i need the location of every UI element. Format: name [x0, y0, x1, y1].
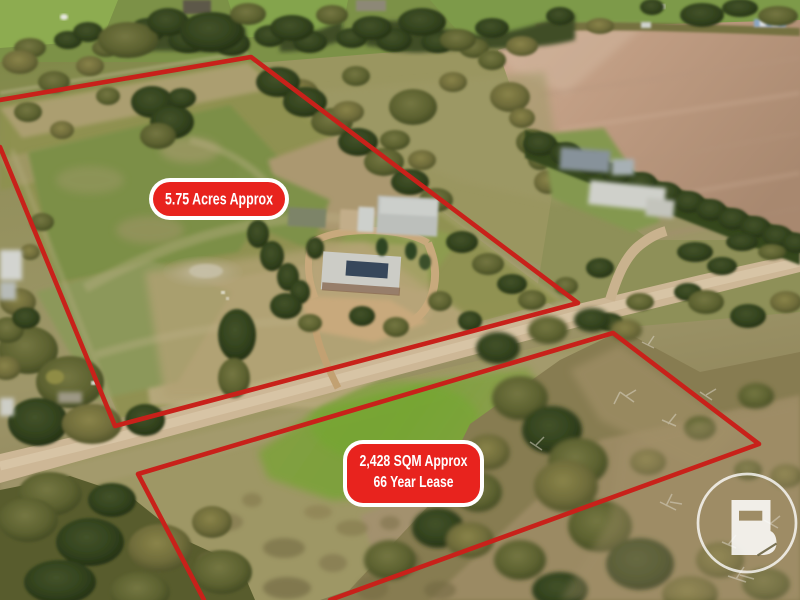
svg-text:5.75 Acres Approx: 5.75 Acres Approx	[165, 190, 273, 209]
svg-text:2,428 SQM Approx: 2,428 SQM Approx	[360, 453, 468, 470]
svg-text:66 Year Lease: 66 Year Lease	[374, 474, 454, 491]
